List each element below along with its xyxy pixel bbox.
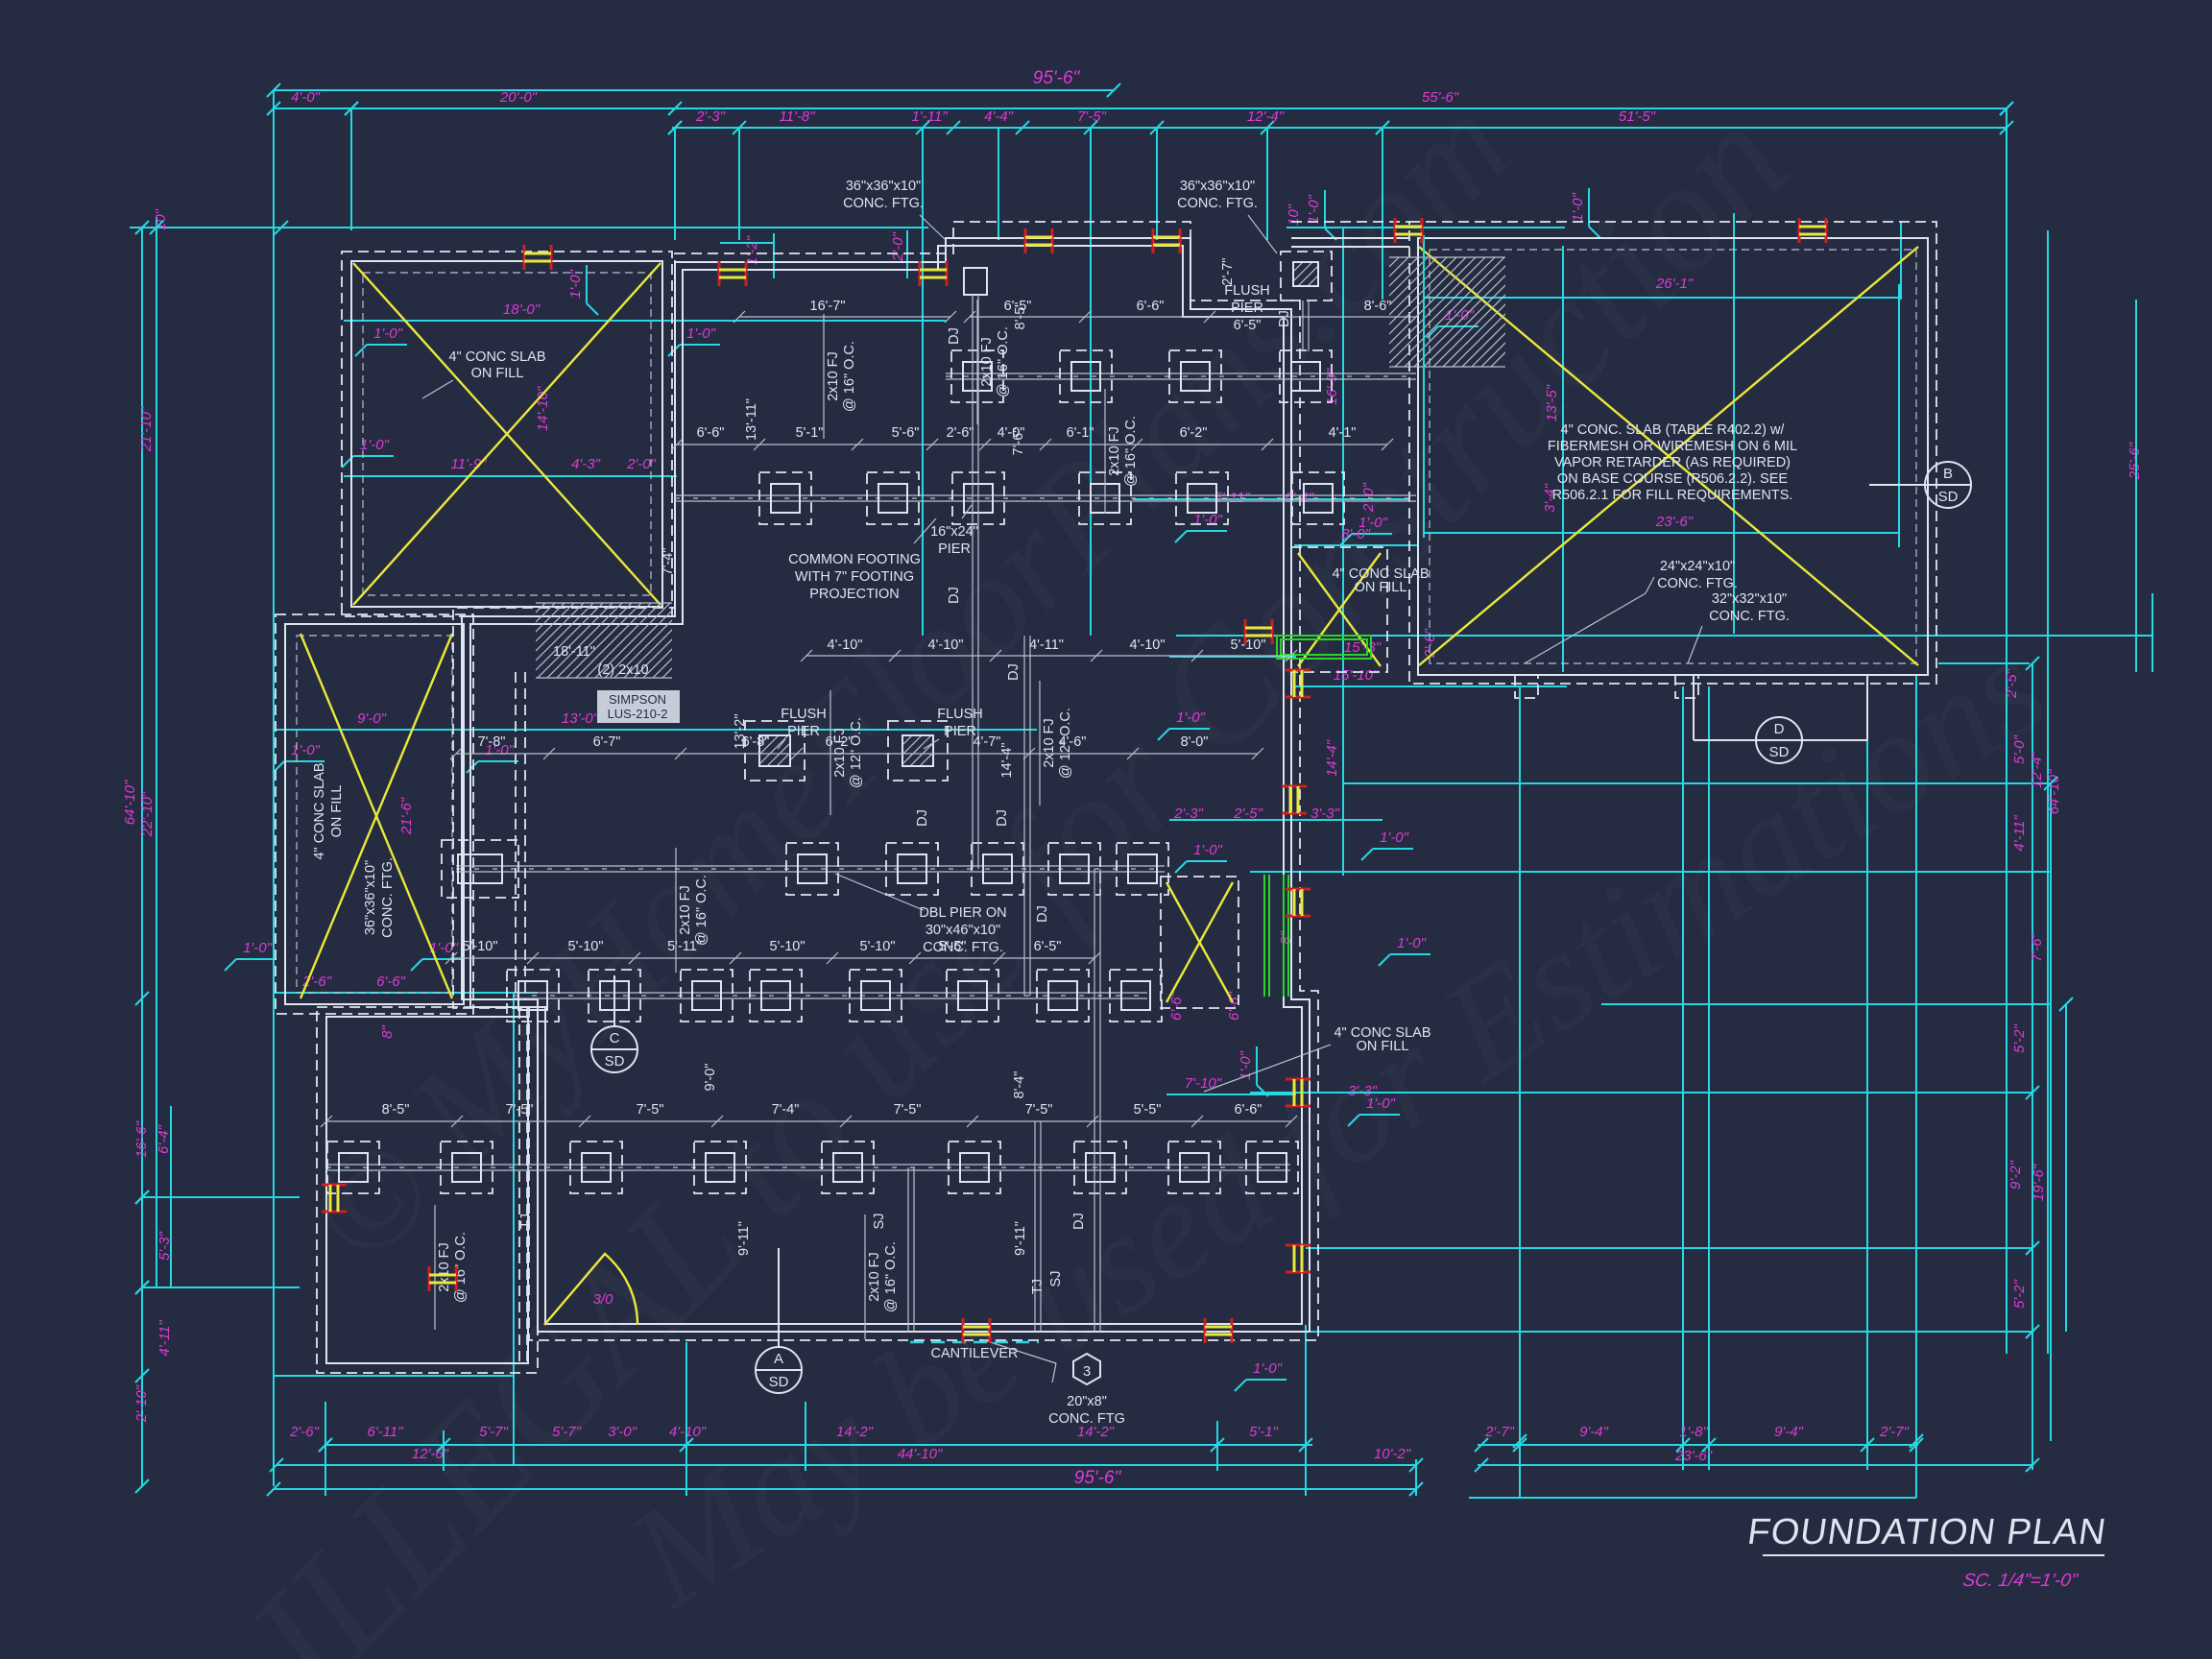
svg-text:2x10 FJ: 2x10 FJ xyxy=(1107,426,1122,476)
svg-text:22'-10": 22'-10" xyxy=(139,791,156,837)
svg-text:44'-10": 44'-10" xyxy=(898,1446,943,1462)
svg-text:1'-0": 1'-0" xyxy=(1193,512,1223,528)
svg-text:FIBERMESH OR WIREMESH ON 6 MIL: FIBERMESH OR WIREMESH ON 6 MIL xyxy=(1548,439,1797,454)
svg-text:ON FILL: ON FILL xyxy=(329,785,345,838)
svg-text:20'-0": 20'-0" xyxy=(499,89,538,106)
svg-text:7'-5": 7'-5" xyxy=(506,1102,534,1118)
svg-text:4" CONC SLAB: 4" CONC SLAB xyxy=(312,762,327,859)
svg-text:3'-3": 3'-3" xyxy=(1310,805,1340,822)
svg-text:DJ: DJ xyxy=(1035,905,1050,923)
svg-text:4'-4": 4'-4" xyxy=(984,108,1014,125)
svg-text:@ 12" O.C.: @ 12" O.C. xyxy=(1058,708,1073,779)
svg-text:36"x36"x10": 36"x36"x10" xyxy=(846,179,921,194)
svg-text:FLUSH: FLUSH xyxy=(937,707,983,722)
svg-text:23'-6": 23'-6" xyxy=(1674,1448,1713,1464)
svg-text:13'-5": 13'-5" xyxy=(1544,384,1560,421)
svg-text:C: C xyxy=(610,1030,620,1046)
svg-text:FLUSH: FLUSH xyxy=(1224,283,1270,299)
svg-text:SC. 1/4"=1'-0": SC. 1/4"=1'-0" xyxy=(1961,1571,2080,1591)
svg-text:COMMON FOOTING: COMMON FOOTING xyxy=(788,552,921,567)
svg-text:4'-11": 4'-11" xyxy=(156,1320,173,1357)
svg-text:PIER: PIER xyxy=(787,724,820,739)
svg-text:9'-4": 9'-4" xyxy=(1579,1424,1609,1440)
svg-text:12'-4": 12'-4" xyxy=(1247,108,1285,125)
svg-text:14'-2": 14'-2" xyxy=(836,1424,874,1440)
svg-text:SD: SD xyxy=(1769,744,1790,760)
svg-text:PIER: PIER xyxy=(944,724,976,739)
svg-text:5'-1": 5'-1" xyxy=(1249,1424,1279,1440)
svg-text:CONC. FTG: CONC. FTG xyxy=(1048,1411,1125,1427)
svg-text:8'-4": 8'-4" xyxy=(1012,1071,1027,1099)
svg-text:1'-0": 1'-0" xyxy=(1380,829,1409,846)
svg-text:13'-0": 13'-0" xyxy=(562,710,599,727)
svg-text:10'-2": 10'-2" xyxy=(1374,1446,1411,1462)
svg-text:SJ: SJ xyxy=(872,1214,887,1230)
svg-text:2'-0": 2'-0" xyxy=(1360,482,1377,513)
svg-text:36"x36"x10": 36"x36"x10" xyxy=(363,860,378,935)
svg-text:7'-4": 7'-4" xyxy=(772,1102,800,1118)
svg-text:1'-0": 1'-0" xyxy=(291,742,321,758)
svg-text:2'-6": 2'-6" xyxy=(289,1424,320,1440)
svg-text:4'-10": 4'-10" xyxy=(828,637,863,653)
svg-text:95'-6": 95'-6" xyxy=(1074,1468,1122,1488)
svg-text:CONC. FTG.: CONC. FTG. xyxy=(843,196,924,211)
svg-text:1'-0": 1'-0" xyxy=(686,325,716,342)
svg-text:DJ: DJ xyxy=(1006,663,1022,681)
svg-text:@ 12" O.C.: @ 12" O.C. xyxy=(849,717,864,788)
svg-text:5'-7": 5'-7" xyxy=(552,1424,582,1440)
svg-text:4'-10": 4'-10" xyxy=(928,637,964,653)
svg-text:3: 3 xyxy=(1083,1363,1091,1380)
svg-text:7'-5": 7'-5" xyxy=(894,1102,922,1118)
svg-text:FLUSH: FLUSH xyxy=(781,707,827,722)
svg-text:5'-2": 5'-2" xyxy=(2011,1279,2028,1309)
svg-text:SD: SD xyxy=(605,1053,625,1070)
svg-text:CONC. FTG.: CONC. FTG. xyxy=(923,940,1003,955)
svg-text:4'-11": 4'-11" xyxy=(1029,637,1064,653)
svg-text:1'-0": 1'-0" xyxy=(1253,1360,1283,1377)
svg-text:5'-10": 5'-10" xyxy=(568,939,604,954)
svg-text:TJ: TJ xyxy=(1030,1279,1046,1294)
svg-text:64'-10": 64'-10" xyxy=(122,780,138,825)
svg-text:20"x8": 20"x8" xyxy=(1067,1394,1107,1409)
svg-text:DJ: DJ xyxy=(947,587,962,604)
svg-text:9'-4": 9'-4" xyxy=(1774,1424,1804,1440)
svg-text:8'-5": 8'-5" xyxy=(382,1102,410,1118)
svg-text:5'-10": 5'-10" xyxy=(770,939,805,954)
svg-text:WITH 7" FOOTING: WITH 7" FOOTING xyxy=(795,569,914,585)
svg-text:SD: SD xyxy=(1938,489,1959,505)
svg-text:1'-8": 1'-8" xyxy=(1679,1424,1709,1440)
svg-text:CANTILEVER: CANTILEVER xyxy=(930,1346,1018,1361)
svg-text:6'-6": 6'-6" xyxy=(1235,1102,1262,1118)
svg-text:SD: SD xyxy=(769,1374,789,1390)
svg-text:8'-6": 8'-6" xyxy=(1364,299,1392,314)
svg-text:7'-5": 7'-5" xyxy=(1077,108,1107,125)
svg-text:DJ: DJ xyxy=(1071,1213,1087,1230)
svg-text:24"x24"x10": 24"x24"x10" xyxy=(1660,559,1735,574)
svg-text:4'-1": 4'-1" xyxy=(1329,425,1357,441)
svg-text:5'-7": 5'-7" xyxy=(479,1424,509,1440)
svg-text:2x10 FJ: 2x10 FJ xyxy=(867,1252,882,1302)
svg-text:7'-6": 7'-6" xyxy=(2029,932,2045,962)
svg-text:1'-0": 1'-0" xyxy=(243,940,273,956)
svg-text:16'-7": 16'-7" xyxy=(810,299,846,314)
svg-text:11'-9": 11'-9" xyxy=(450,456,487,472)
svg-text:7'-10": 7'-10" xyxy=(1185,1075,1222,1092)
svg-text:1'-0": 1'-0" xyxy=(1176,709,1206,726)
svg-text:2'-7": 2'-7" xyxy=(1879,1424,1910,1440)
svg-text:30"x46"x10": 30"x46"x10" xyxy=(926,923,1000,938)
svg-text:DJ: DJ xyxy=(995,809,1010,827)
svg-text:2'-6": 2'-6" xyxy=(947,425,974,441)
svg-text:36"x36"x10": 36"x36"x10" xyxy=(1180,179,1255,194)
svg-text:LUS-210-2: LUS-210-2 xyxy=(608,707,668,721)
svg-text:ON FILL: ON FILL xyxy=(471,366,524,381)
svg-text:5'-0": 5'-0" xyxy=(2011,734,2028,764)
svg-text:12'-4": 12'-4" xyxy=(2029,751,2045,788)
svg-text:DJ: DJ xyxy=(1277,310,1292,327)
svg-text:@ 16" O.C.: @ 16" O.C. xyxy=(1123,416,1139,487)
svg-text:26'-1": 26'-1" xyxy=(1655,276,1694,292)
svg-text:14'-4": 14'-4" xyxy=(999,743,1015,779)
svg-text:9'-11": 9'-11" xyxy=(1013,1221,1028,1256)
svg-text:6'-6": 6'-6" xyxy=(1137,299,1165,314)
svg-text:VAPOR RETARDER (AS REQUIRED): VAPOR RETARDER (AS REQUIRED) xyxy=(1554,455,1791,470)
svg-text:4'-7": 4'-7" xyxy=(974,734,1001,750)
svg-text:18'-11": 18'-11" xyxy=(553,644,595,660)
svg-text:2'-0": 2'-0" xyxy=(890,231,906,262)
svg-text:D: D xyxy=(1774,721,1785,737)
svg-text:7'-8": 7'-8" xyxy=(478,734,506,750)
svg-text:4'-0": 4'-0" xyxy=(291,89,321,106)
svg-text:5'-5": 5'-5" xyxy=(1134,1102,1162,1118)
svg-text:1'-11": 1'-11" xyxy=(911,108,948,125)
svg-text:95'-6": 95'-6" xyxy=(1033,68,1081,88)
svg-text:B: B xyxy=(1943,466,1953,482)
svg-text:6'-7": 6'-7" xyxy=(593,734,621,750)
svg-text:21'-6": 21'-6" xyxy=(398,797,415,835)
svg-text:CONC. FTG.: CONC. FTG. xyxy=(1657,576,1738,591)
svg-text:FOUNDATION PLAN: FOUNDATION PLAN xyxy=(1745,1511,2109,1552)
svg-text:@ 16" O.C.: @ 16" O.C. xyxy=(694,875,709,946)
svg-text:4'-10": 4'-10" xyxy=(669,1424,707,1440)
svg-text:5'-10": 5'-10" xyxy=(860,939,896,954)
svg-text:6'-6": 6'-6" xyxy=(376,974,406,990)
svg-text:2x10 FJ: 2x10 FJ xyxy=(678,885,693,935)
svg-text:8'-0": 8'-0" xyxy=(1341,526,1371,542)
svg-text:6'-5": 6'-5" xyxy=(1234,318,1262,333)
svg-text:4" CONC. SLAB (TABLE R402.2) w: 4" CONC. SLAB (TABLE R402.2) w/ xyxy=(1561,422,1786,438)
svg-text:2'-0": 2'-0" xyxy=(626,456,657,472)
svg-text:8'-0": 8'-0" xyxy=(1181,734,1209,750)
svg-text:7'-5": 7'-5" xyxy=(637,1102,664,1118)
svg-text:5'-1": 5'-1" xyxy=(796,425,824,441)
svg-text:51'-5": 51'-5" xyxy=(1619,108,1656,125)
svg-text:9'-11": 9'-11" xyxy=(736,1221,752,1256)
svg-text:1'-0": 1'-0" xyxy=(1306,194,1322,224)
svg-text:11'-8": 11'-8" xyxy=(779,108,815,125)
svg-text:A: A xyxy=(774,1351,783,1367)
svg-text:7'-4": 7'-4" xyxy=(661,548,676,576)
svg-text:SIMPSON: SIMPSON xyxy=(609,692,666,707)
svg-text:5'-2": 5'-2" xyxy=(2011,1023,2028,1053)
svg-text:6'-2": 6'-2" xyxy=(1180,425,1208,441)
svg-text:6'-11": 6'-11" xyxy=(367,1424,403,1440)
svg-text:DJ: DJ xyxy=(947,327,962,345)
svg-text:55'-6": 55'-6" xyxy=(1422,89,1459,106)
svg-text:1'-0": 1'-0" xyxy=(360,437,390,453)
svg-text:3'-3": 3'-3" xyxy=(1348,1083,1378,1099)
svg-text:32"x32"x10": 32"x32"x10" xyxy=(1712,591,1787,607)
svg-text:3/0: 3/0 xyxy=(593,1291,614,1308)
svg-text:2x10 FJ: 2x10 FJ xyxy=(437,1242,452,1292)
svg-text:@ 16" O.C.: @ 16" O.C. xyxy=(883,1241,899,1312)
svg-text:18'-0": 18'-0" xyxy=(503,301,541,318)
svg-text:16"x24": 16"x24" xyxy=(930,524,978,540)
svg-text:13'-11": 13'-11" xyxy=(744,398,759,441)
svg-text:23'-6": 23'-6" xyxy=(1655,514,1694,530)
svg-text:PROJECTION: PROJECTION xyxy=(809,587,899,602)
svg-text:1'-0": 1'-0" xyxy=(567,269,584,299)
svg-text:9'-0": 9'-0" xyxy=(357,710,387,727)
svg-text:5'-10": 5'-10" xyxy=(1231,637,1266,653)
svg-text:TJ: TJ xyxy=(518,1214,534,1229)
svg-text:16'-6": 16'-6" xyxy=(133,1120,150,1158)
svg-text:14'-4": 14'-4" xyxy=(1324,739,1340,777)
svg-text:3'-0": 3'-0" xyxy=(608,1424,637,1440)
svg-text:9'-0": 9'-0" xyxy=(703,1064,718,1092)
svg-text:8": 8" xyxy=(379,1024,396,1038)
svg-text:@ 16" O.C.: @ 16" O.C. xyxy=(842,341,857,412)
svg-text:SJ: SJ xyxy=(1048,1271,1064,1287)
svg-text:6'-5": 6'-5" xyxy=(1034,939,1062,954)
svg-text:7'-6": 7'-6" xyxy=(1011,428,1026,456)
svg-text:@ 16" O.C.: @ 16" O.C. xyxy=(996,326,1011,397)
svg-text:1'-0": 1'-0" xyxy=(1397,935,1427,951)
svg-text:ON FILL: ON FILL xyxy=(1355,580,1407,595)
svg-text:6'-4": 6'-4" xyxy=(156,1124,172,1154)
svg-text:2'-10": 2'-10" xyxy=(133,1384,150,1423)
svg-text:1'-0": 1'-0" xyxy=(1193,842,1223,858)
svg-text:21'-10": 21'-10" xyxy=(138,406,155,452)
svg-text:5'-10": 5'-10" xyxy=(463,939,498,954)
svg-text:CONC. FTG.: CONC. FTG. xyxy=(1709,609,1790,624)
svg-text:6'-1": 6'-1" xyxy=(1067,425,1094,441)
svg-text:CONC. FTG.: CONC. FTG. xyxy=(380,857,396,938)
svg-text:1'-2": 1'-2" xyxy=(744,235,760,265)
svg-text:25'-6": 25'-6" xyxy=(2127,442,2143,480)
svg-text:2x10 FJ: 2x10 FJ xyxy=(1042,718,1057,768)
svg-text:PIER: PIER xyxy=(938,541,971,557)
svg-text:2x10 FJ: 2x10 FJ xyxy=(832,728,848,778)
svg-text:1'-0": 1'-0" xyxy=(373,325,403,342)
svg-text:2x10 FJ: 2x10 FJ xyxy=(826,351,841,401)
svg-text:2'-7": 2'-7" xyxy=(1484,1424,1515,1440)
svg-text:DBL PIER ON: DBL PIER ON xyxy=(919,905,1006,921)
svg-text:PIER: PIER xyxy=(1231,301,1263,316)
svg-text:2'-5": 2'-5" xyxy=(1233,805,1263,822)
svg-text:64'-10": 64'-10" xyxy=(2046,769,2062,814)
svg-text:R506.2.1 FOR FILL REQUIREMENTS: R506.2.1 FOR FILL REQUIREMENTS. xyxy=(1552,488,1793,503)
svg-text:5'-6": 5'-6" xyxy=(892,425,920,441)
svg-text:19'-6": 19'-6" xyxy=(2031,1164,2047,1201)
svg-text:13'-2": 13'-2" xyxy=(733,714,748,750)
svg-text:2'-3": 2'-3" xyxy=(1173,805,1204,822)
svg-text:2'-7": 2'-7" xyxy=(1220,258,1236,286)
svg-text:ON BASE COURSE (R506.2.2). SEE: ON BASE COURSE (R506.2.2). SEE xyxy=(1557,471,1788,487)
svg-text:8'-5": 8'-5" xyxy=(1013,302,1028,330)
svg-text:7'-5": 7'-5" xyxy=(1025,1102,1053,1118)
svg-text:9'-2": 9'-2" xyxy=(2008,1160,2024,1190)
svg-text:6'-6": 6'-6" xyxy=(697,425,725,441)
svg-text:CONC. FTG.: CONC. FTG. xyxy=(1177,196,1258,211)
svg-text:2x10 FJ: 2x10 FJ xyxy=(979,337,995,387)
svg-text:4'-10": 4'-10" xyxy=(1130,637,1166,653)
svg-text:4" CONC SLAB: 4" CONC SLAB xyxy=(448,349,545,365)
svg-text:2'-5": 2'-5" xyxy=(2004,668,2020,699)
svg-text:ON FILL: ON FILL xyxy=(1357,1039,1409,1054)
svg-text:2'-3": 2'-3" xyxy=(695,108,726,125)
svg-text:DJ: DJ xyxy=(915,809,930,827)
svg-text:1'-0": 1'-0" xyxy=(1570,192,1586,222)
svg-text:4'-11": 4'-11" xyxy=(2011,815,2028,852)
svg-text:(2) 2x10: (2) 2x10 xyxy=(597,662,648,678)
svg-text:10": 10" xyxy=(153,208,169,230)
svg-text:4'-3": 4'-3" xyxy=(571,456,601,472)
svg-text:15'-10": 15'-10" xyxy=(1334,667,1379,684)
